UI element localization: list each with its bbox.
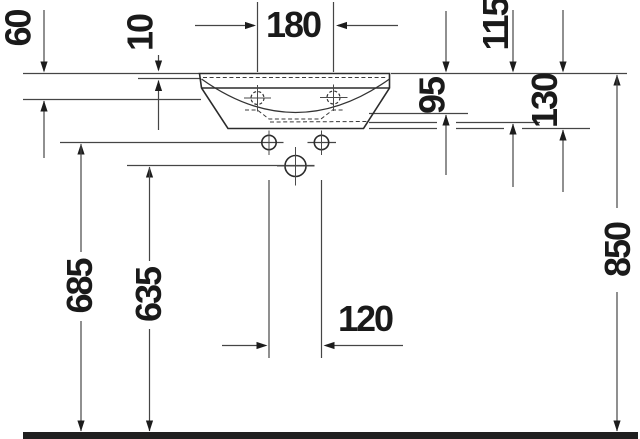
dimension-120: 120 [222, 298, 403, 349]
dim-685-label: 685 [59, 257, 100, 313]
dimension-115: 115 [475, 0, 517, 187]
dim-60-label: 60 [0, 10, 39, 47]
dim-60-arrowhead-up [40, 101, 47, 112]
dim-685-arrowhead-down [77, 421, 84, 432]
dim-95-label: 95 [412, 76, 453, 114]
drain-recess-hidden [258, 111, 332, 120]
dim-130-arrowhead-down [559, 62, 566, 73]
bowl-curve [202, 79, 390, 113]
dim-130-label: 130 [524, 73, 565, 128]
dim-10-label: 10 [120, 14, 161, 51]
dim-60-arrowhead-down [40, 62, 47, 73]
dim-10-arrowhead-down [155, 61, 162, 72]
dimension-850: 850 [597, 75, 638, 432]
dim-850-label: 850 [597, 222, 638, 277]
drain-hole [277, 147, 315, 186]
dim-115-arrowhead-down [509, 62, 516, 73]
dimension-180: 180 [195, 4, 398, 45]
floor-line [23, 432, 638, 439]
drawing-canvas: 60 10 180 95 115 130 [0, 0, 640, 439]
dimension-685: 685 [59, 144, 100, 432]
dim-180-label: 180 [266, 4, 321, 45]
basin-body-outline [200, 74, 390, 129]
dimension-130: 130 [524, 10, 567, 192]
dim-180-arrowhead-right [245, 22, 256, 29]
dim-95-arrowhead-down [442, 62, 449, 73]
dim-95-arrowhead-up [442, 115, 449, 126]
dimension-635: 635 [128, 167, 169, 432]
dim-115-arrowhead-up [509, 124, 516, 135]
dim-10-arrowhead-up [155, 80, 162, 91]
dim-130-arrowhead-up [559, 130, 566, 141]
dimension-10: 10 [120, 14, 163, 130]
dimension-95: 95 [412, 11, 453, 175]
dim-180-arrowhead-left [336, 22, 347, 29]
dim-120-arrowhead-left [324, 342, 335, 349]
overflow-hidden-line [270, 122, 368, 123]
dim-635-arrowhead-down [146, 421, 153, 432]
dim-120-arrowhead-right [257, 342, 268, 349]
dim-120-label: 120 [338, 298, 393, 339]
dim-115-label: 115 [475, 0, 516, 51]
technical-drawing: 60 10 180 95 115 130 [0, 0, 640, 439]
basin-outline [200, 74, 390, 129]
dim-850-arrowhead-down [613, 421, 620, 432]
dim-635-label: 635 [128, 266, 169, 322]
reference-lines [23, 2, 627, 358]
dimension-60: 60 [0, 10, 48, 158]
